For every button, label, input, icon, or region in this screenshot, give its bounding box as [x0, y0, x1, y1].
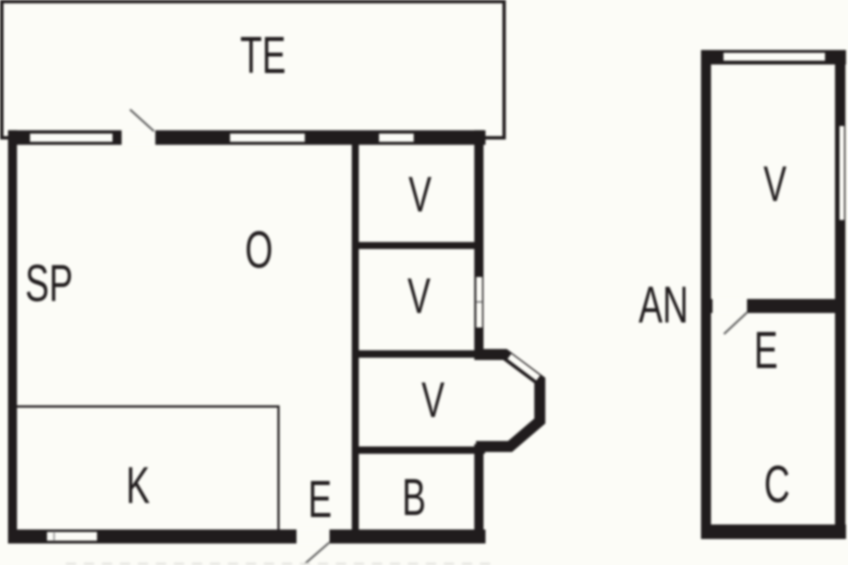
svg-text:SP: SP: [25, 256, 73, 313]
svg-text:E: E: [308, 472, 332, 529]
svg-text:V: V: [407, 269, 430, 325]
svg-text:V: V: [421, 373, 444, 429]
svg-text:B: B: [402, 470, 426, 527]
svg-text:AN: AN: [639, 277, 689, 334]
svg-text:C: C: [764, 457, 790, 514]
svg-text:V: V: [408, 167, 431, 223]
svg-text:E: E: [754, 323, 778, 380]
svg-text:O: O: [245, 222, 273, 279]
svg-text:TE: TE: [240, 28, 286, 85]
svg-text:V: V: [763, 157, 786, 213]
svg-text:K: K: [126, 458, 150, 515]
